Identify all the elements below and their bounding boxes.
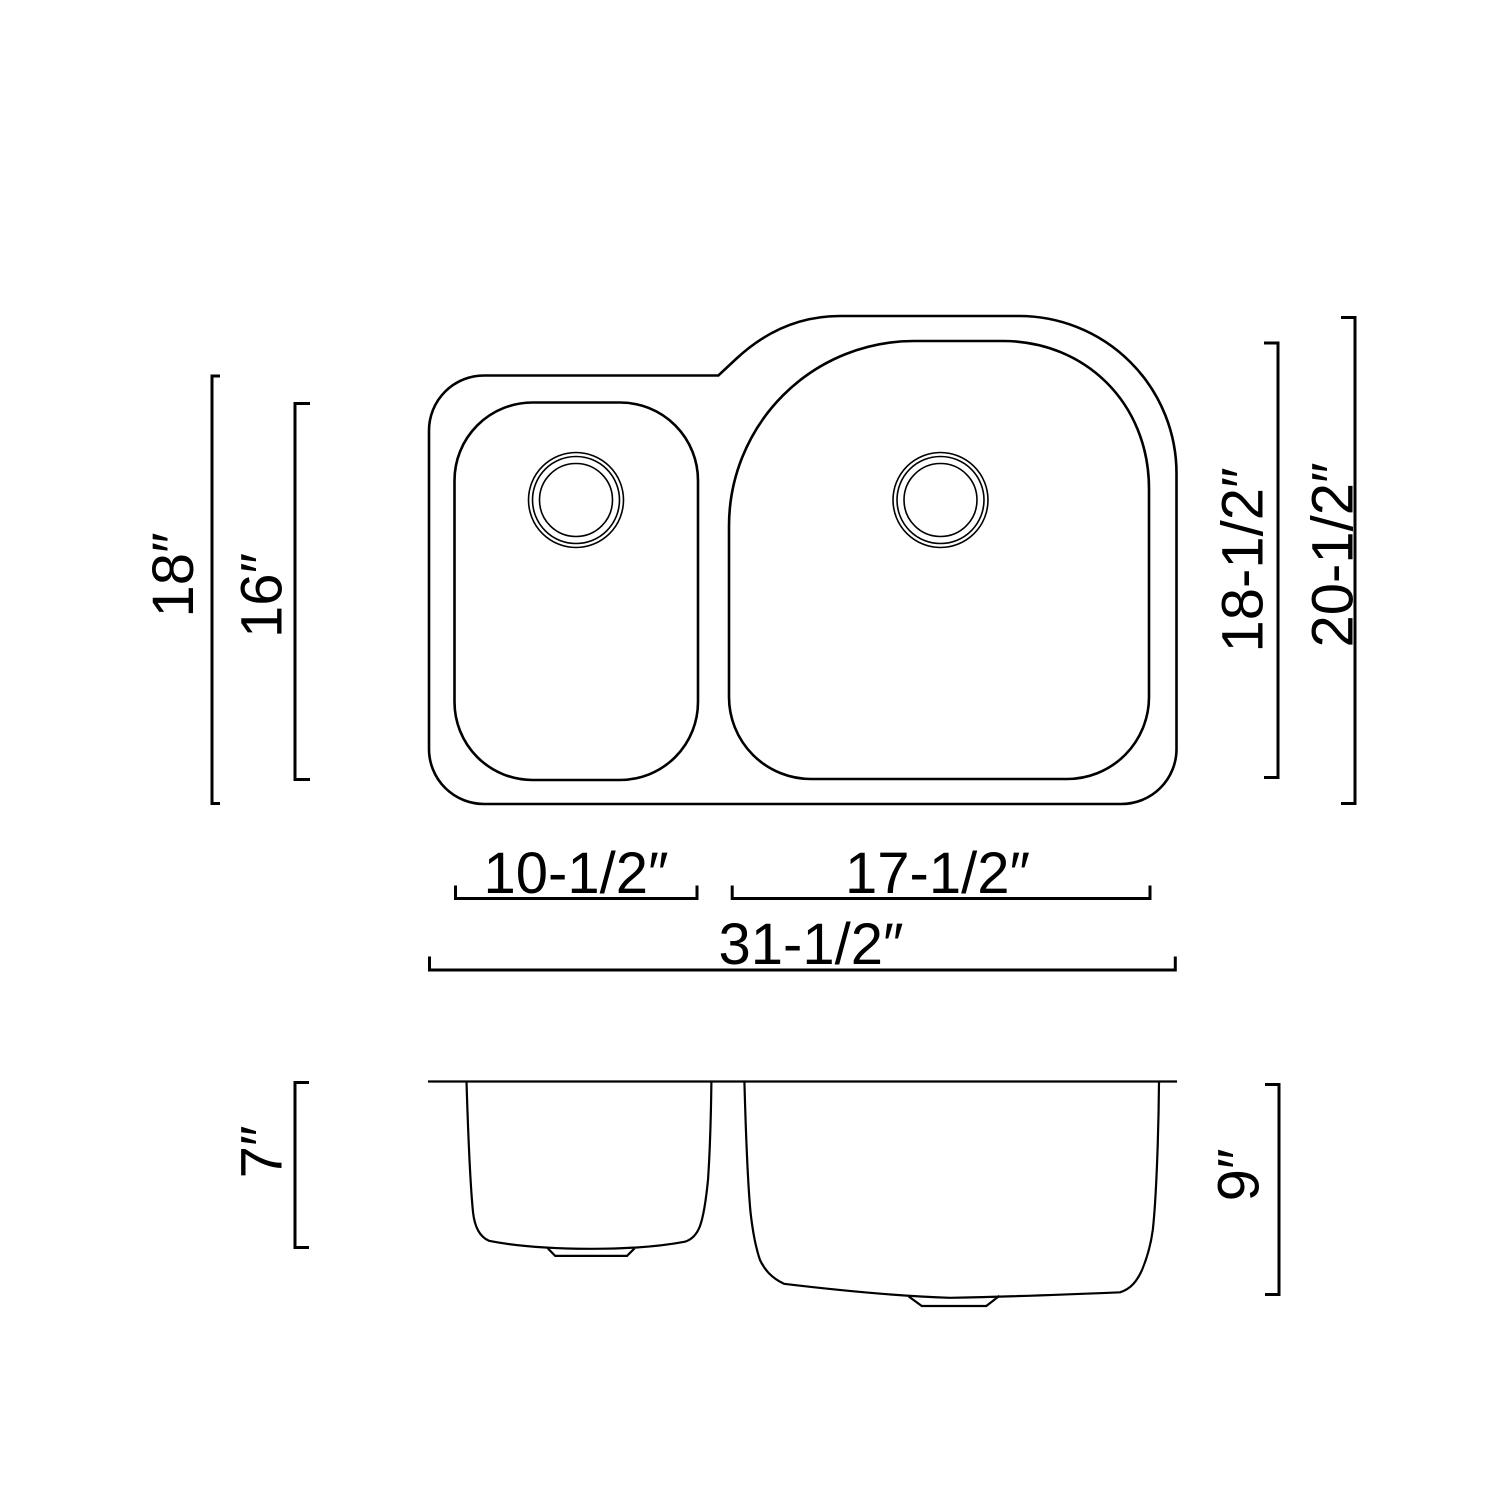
svg-text:7″: 7″	[230, 1126, 295, 1179]
svg-text:16″: 16″	[230, 553, 295, 638]
svg-text:18-1/2″: 18-1/2″	[1210, 468, 1275, 653]
svg-text:17-1/2″: 17-1/2″	[845, 841, 1030, 906]
svg-text:18″: 18″	[141, 532, 206, 617]
svg-text:10-1/2″: 10-1/2″	[484, 841, 669, 906]
svg-text:9″: 9″	[1207, 1149, 1272, 1202]
svg-text:20-1/2″: 20-1/2″	[1301, 463, 1366, 648]
svg-text:31-1/2″: 31-1/2″	[719, 912, 904, 977]
